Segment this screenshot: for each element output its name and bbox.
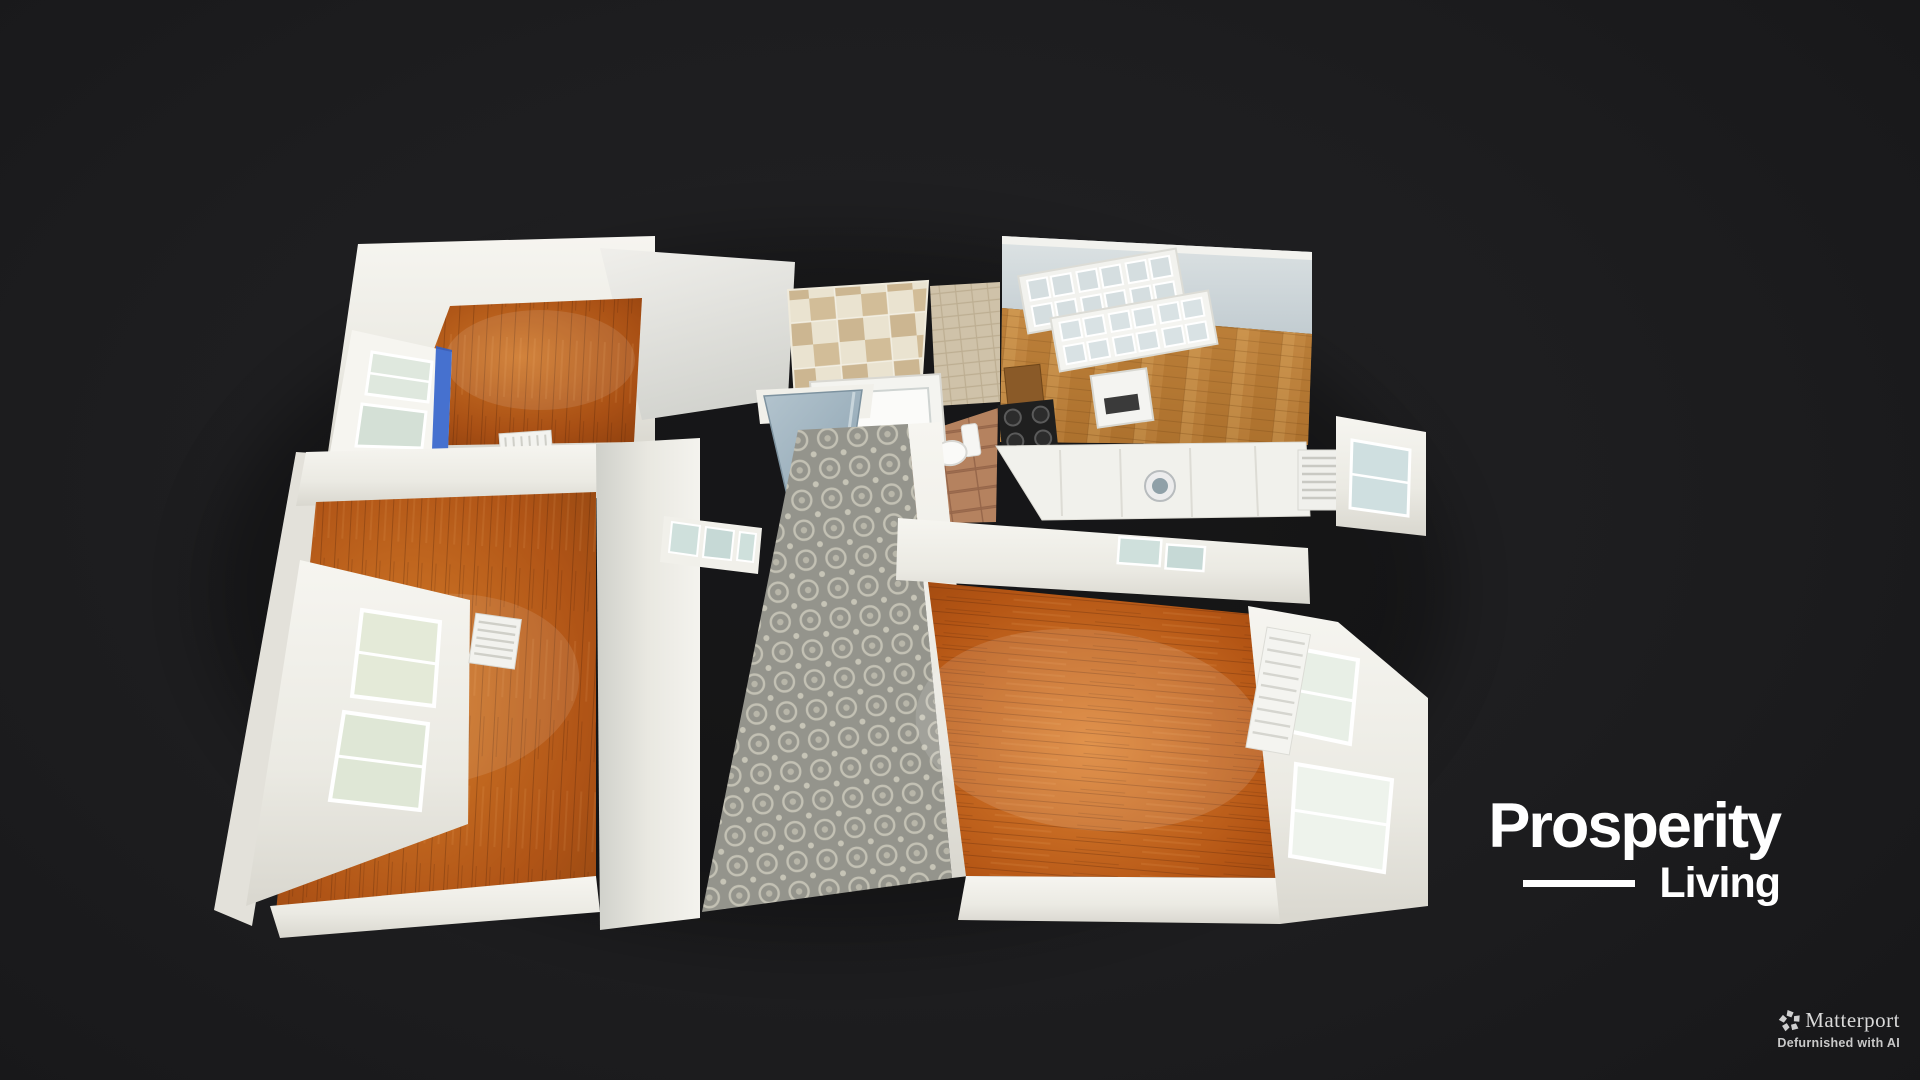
sink [1091,368,1154,427]
floorplan-3d-view[interactable] [0,0,1920,1080]
bottom-wall [958,876,1286,924]
hallway [596,384,986,930]
hallway-wall [596,438,700,930]
matterport-tagline: Defurnished with AI [1777,1036,1900,1050]
brand-underline [1523,880,1635,887]
kitchen [996,236,1426,536]
floor-sheen [445,310,635,410]
brand-logo: Prosperity Living [1450,794,1780,905]
matterport-attribution: Matterport Defurnished with AI [1777,1008,1900,1050]
radiator [469,613,522,669]
brand-name-primary: Prosperity [1450,794,1780,860]
counter-run [996,442,1310,520]
matterport-viewer[interactable]: Prosperity Living Matterport Defurnished… [0,0,1920,1080]
washing-machine-door [1152,478,1168,494]
window [1336,416,1426,536]
brand-name-secondary: Living [1659,862,1780,905]
radiator [1298,450,1340,510]
matterport-pinwheel-icon [1777,1008,1803,1034]
matterport-wordmark: Matterport [1805,1008,1900,1033]
